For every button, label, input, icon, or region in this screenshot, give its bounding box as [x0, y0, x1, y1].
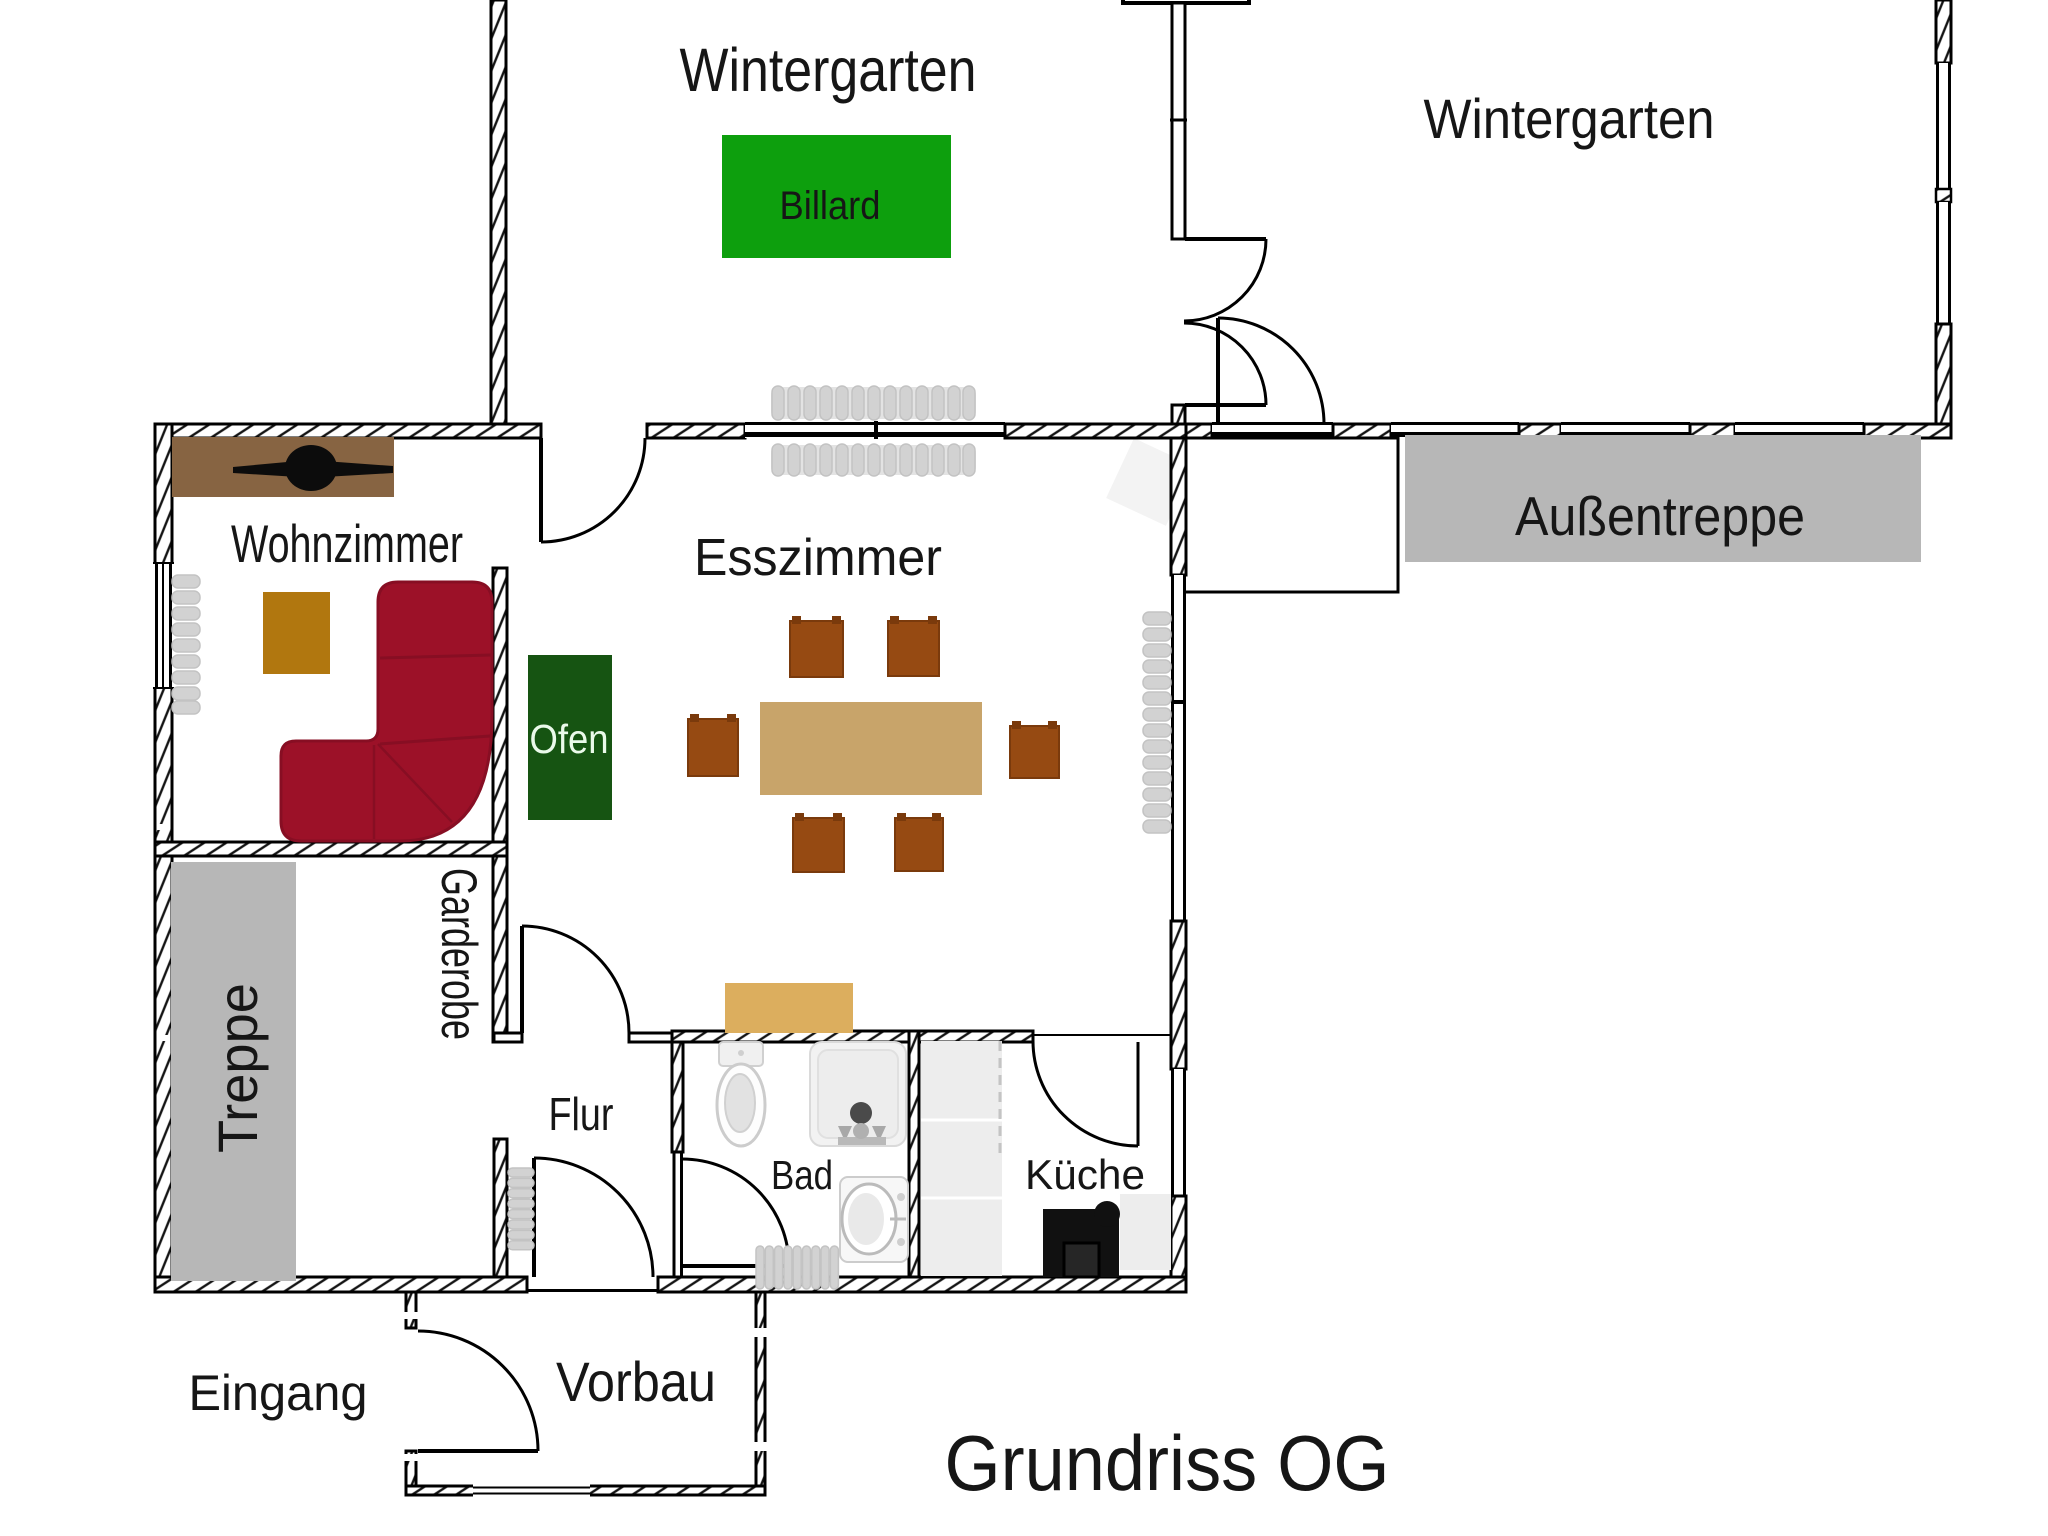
svg-text:Wintergarten: Wintergarten	[680, 36, 977, 104]
svg-text:Wohnzimmer: Wohnzimmer	[231, 515, 463, 574]
svg-text:Treppe: Treppe	[206, 983, 269, 1153]
svg-text:Küche: Küche	[1025, 1151, 1145, 1198]
svg-text:Wintergarten: Wintergarten	[1424, 87, 1715, 150]
svg-text:Billard: Billard	[780, 184, 881, 228]
svg-text:Ofen: Ofen	[530, 716, 609, 762]
svg-text:Eingang: Eingang	[189, 1365, 368, 1421]
svg-text:Vorbau: Vorbau	[556, 1350, 716, 1413]
svg-text:Grundriss OG: Grundriss OG	[945, 1419, 1390, 1507]
svg-text:Garderobe: Garderobe	[431, 868, 487, 1040]
svg-text:Bad: Bad	[771, 1152, 833, 1198]
svg-text:Esszimmer: Esszimmer	[694, 529, 942, 587]
svg-text:Flur: Flur	[549, 1088, 614, 1140]
svg-text:Außentreppe: Außentreppe	[1515, 485, 1805, 547]
